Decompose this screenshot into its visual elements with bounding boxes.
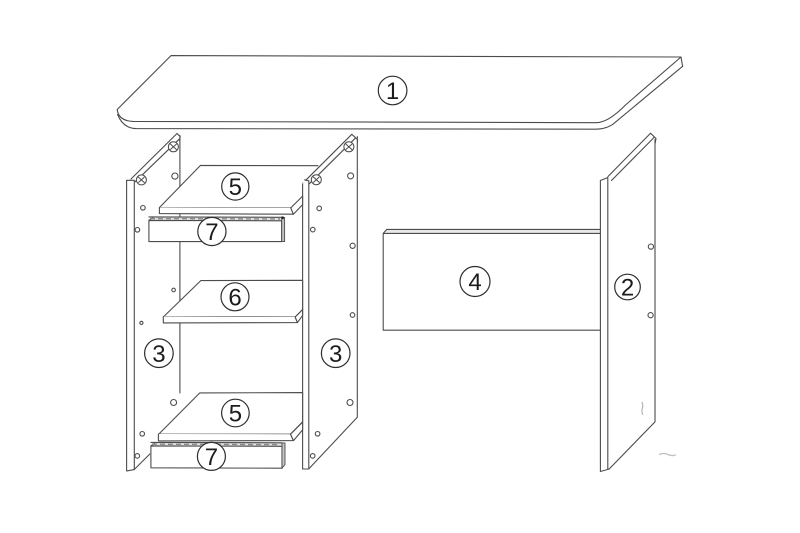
svg-text:7: 7 (205, 444, 218, 471)
svg-text:4: 4 (468, 269, 481, 296)
svg-text:7: 7 (205, 219, 218, 246)
svg-text:5: 5 (229, 174, 242, 201)
svg-text:3: 3 (152, 341, 165, 368)
svg-text:1: 1 (386, 78, 399, 105)
svg-text:6: 6 (228, 284, 241, 311)
svg-text:5: 5 (229, 401, 242, 428)
svg-text:3: 3 (329, 341, 342, 368)
svg-text:2: 2 (621, 275, 634, 302)
